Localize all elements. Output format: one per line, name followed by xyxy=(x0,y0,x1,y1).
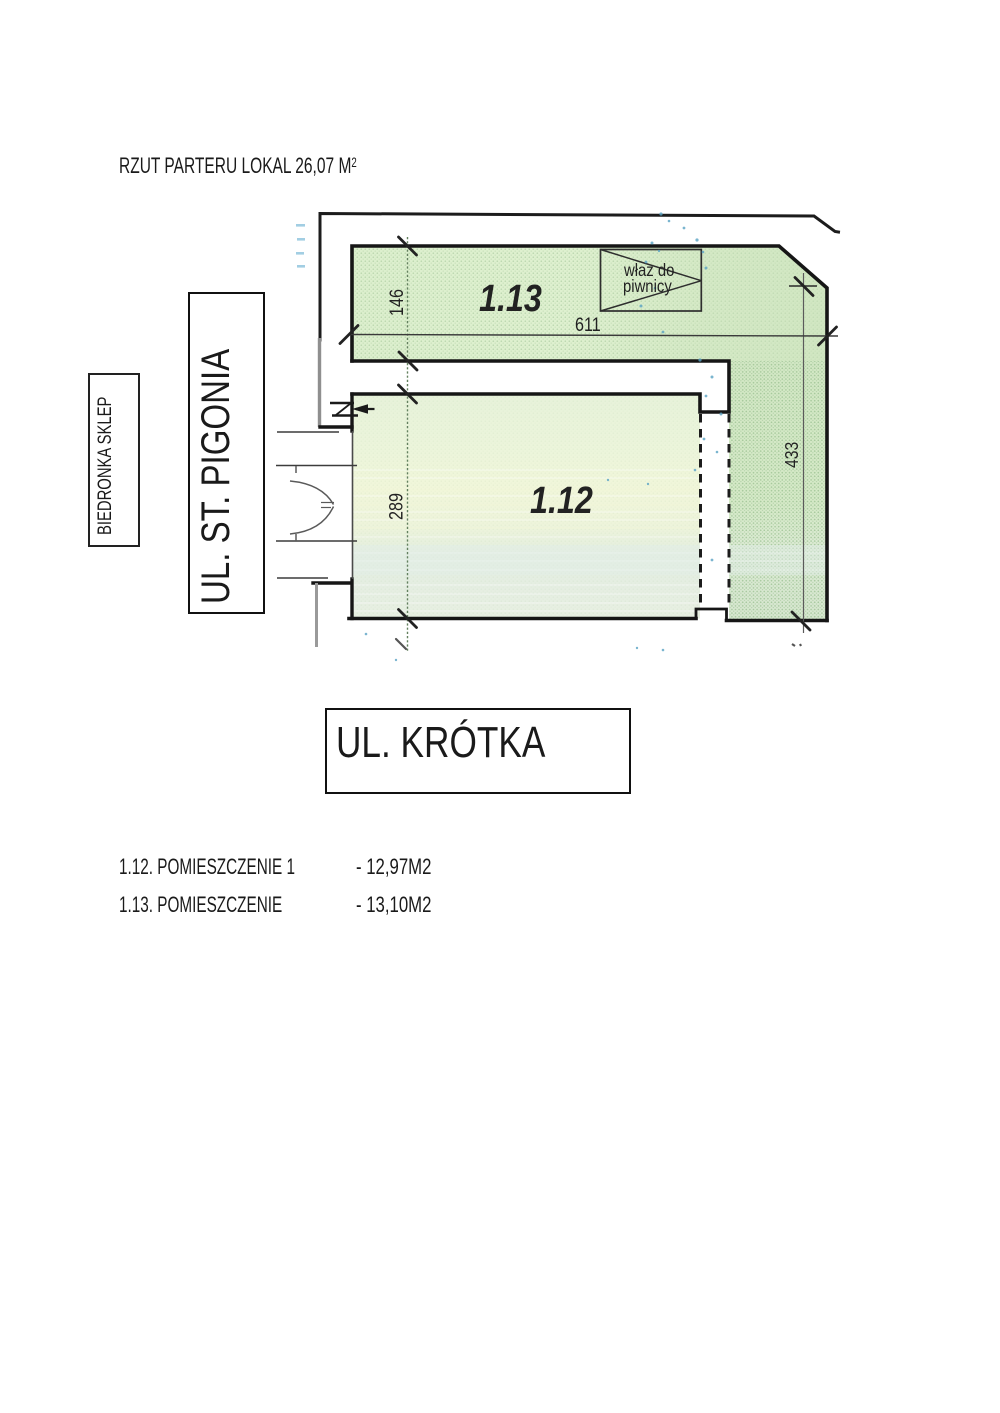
svg-text:289: 289 xyxy=(385,493,407,520)
svg-text:1.12: 1.12 xyxy=(530,480,593,522)
svg-text:611: 611 xyxy=(575,314,601,336)
svg-text:1.13: 1.13 xyxy=(479,278,542,320)
svg-text:146: 146 xyxy=(386,289,408,316)
svg-text:433: 433 xyxy=(781,442,803,468)
svg-text:piwnicy: piwnicy xyxy=(623,277,673,296)
